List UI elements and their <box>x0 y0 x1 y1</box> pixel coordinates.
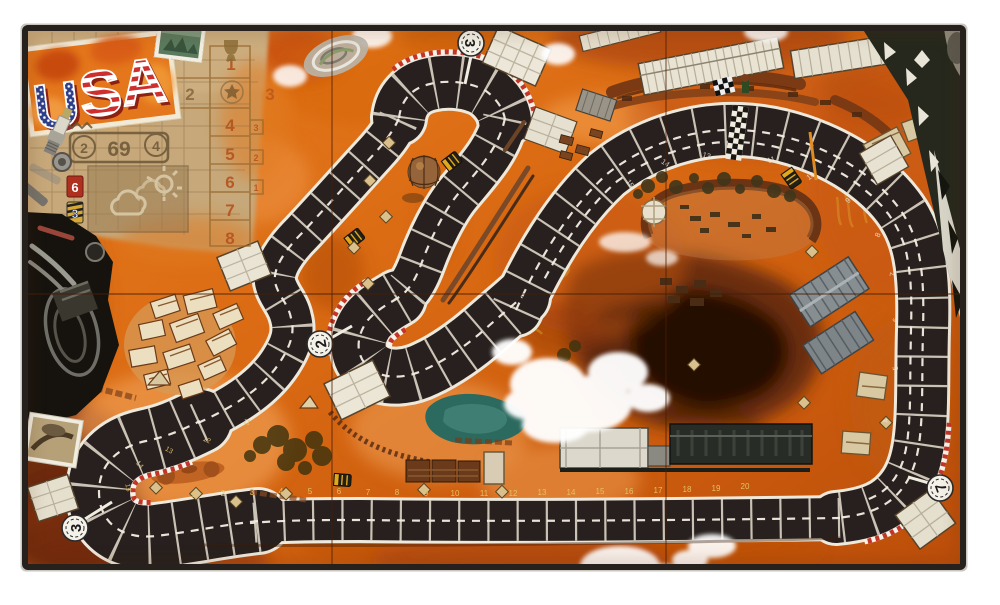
svg-text:17: 17 <box>654 486 663 495</box>
svg-text:2: 2 <box>80 140 88 156</box>
svg-text:3: 3 <box>72 207 79 221</box>
svg-text:10: 10 <box>451 489 460 498</box>
svg-text:8: 8 <box>395 488 400 497</box>
svg-text:2: 2 <box>221 489 226 498</box>
svg-text:20: 20 <box>741 482 750 491</box>
svg-text:7: 7 <box>225 201 234 220</box>
svg-text:6: 6 <box>71 180 78 195</box>
svg-text:4: 4 <box>279 487 284 496</box>
svg-text:15: 15 <box>596 487 605 496</box>
svg-text:18: 18 <box>683 485 692 494</box>
svg-text:6: 6 <box>225 173 234 192</box>
svg-text:5: 5 <box>225 145 234 164</box>
svg-text:8: 8 <box>225 229 234 248</box>
svg-text:4: 4 <box>225 116 235 135</box>
svg-text:16: 16 <box>625 487 634 496</box>
svg-text:19: 19 <box>712 484 721 493</box>
svg-text:5: 5 <box>308 487 313 496</box>
svg-text:3: 3 <box>250 488 255 497</box>
svg-text:2: 2 <box>253 153 258 163</box>
svg-text:69: 69 <box>107 138 130 161</box>
svg-text:4: 4 <box>152 138 160 154</box>
svg-text:9: 9 <box>424 489 429 498</box>
svg-text:7: 7 <box>366 488 371 497</box>
svg-text:11: 11 <box>480 489 489 498</box>
svg-text:12: 12 <box>509 489 518 498</box>
svg-text:2: 2 <box>185 85 194 104</box>
svg-text:1: 1 <box>192 490 197 499</box>
svg-text:1: 1 <box>253 183 258 193</box>
svg-text:14: 14 <box>567 488 576 497</box>
svg-text:5: 5 <box>891 366 900 371</box>
svg-text:3: 3 <box>265 85 274 104</box>
svg-text:6: 6 <box>891 318 900 322</box>
svg-text:3: 3 <box>68 524 85 532</box>
svg-text:13: 13 <box>538 488 547 497</box>
svg-text:3: 3 <box>461 39 478 47</box>
svg-text:15: 15 <box>123 483 131 492</box>
svg-text:3: 3 <box>253 123 258 133</box>
svg-text:6: 6 <box>337 487 342 496</box>
